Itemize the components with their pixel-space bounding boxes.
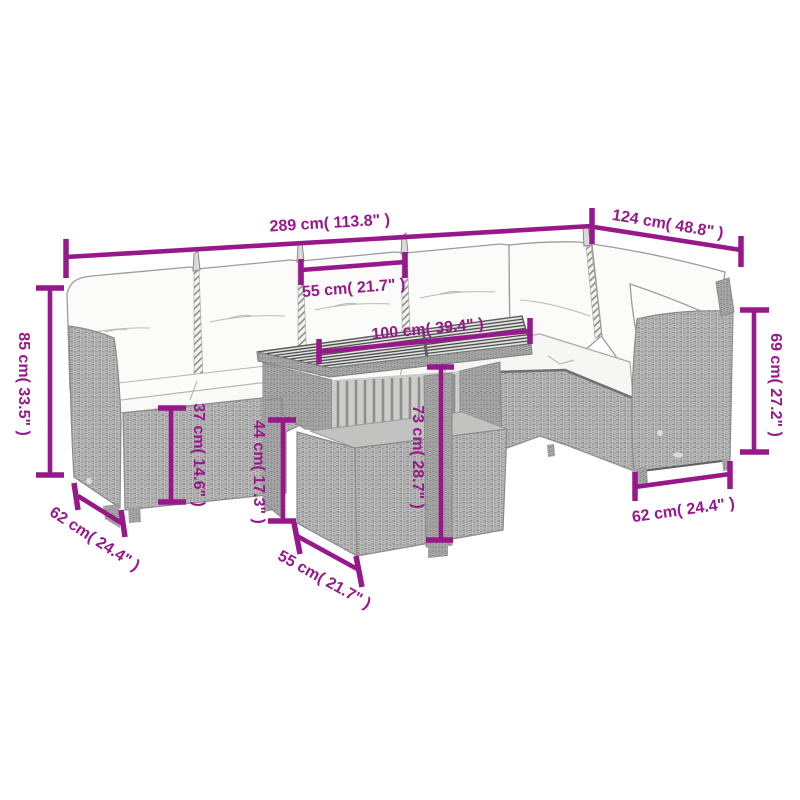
- svg-text:85 cm( 33.5" ): 85 cm( 33.5" ): [15, 332, 32, 436]
- svg-text:37 cm( 14.6" ): 37 cm( 14.6" ): [190, 403, 207, 507]
- svg-text:73 cm( 28.7" ): 73 cm( 28.7" ): [409, 405, 426, 509]
- svg-text:44 cm( 17.3" ): 44 cm( 17.3" ): [250, 420, 267, 524]
- svg-text:69 cm( 27.2" ): 69 cm( 27.2" ): [767, 333, 784, 437]
